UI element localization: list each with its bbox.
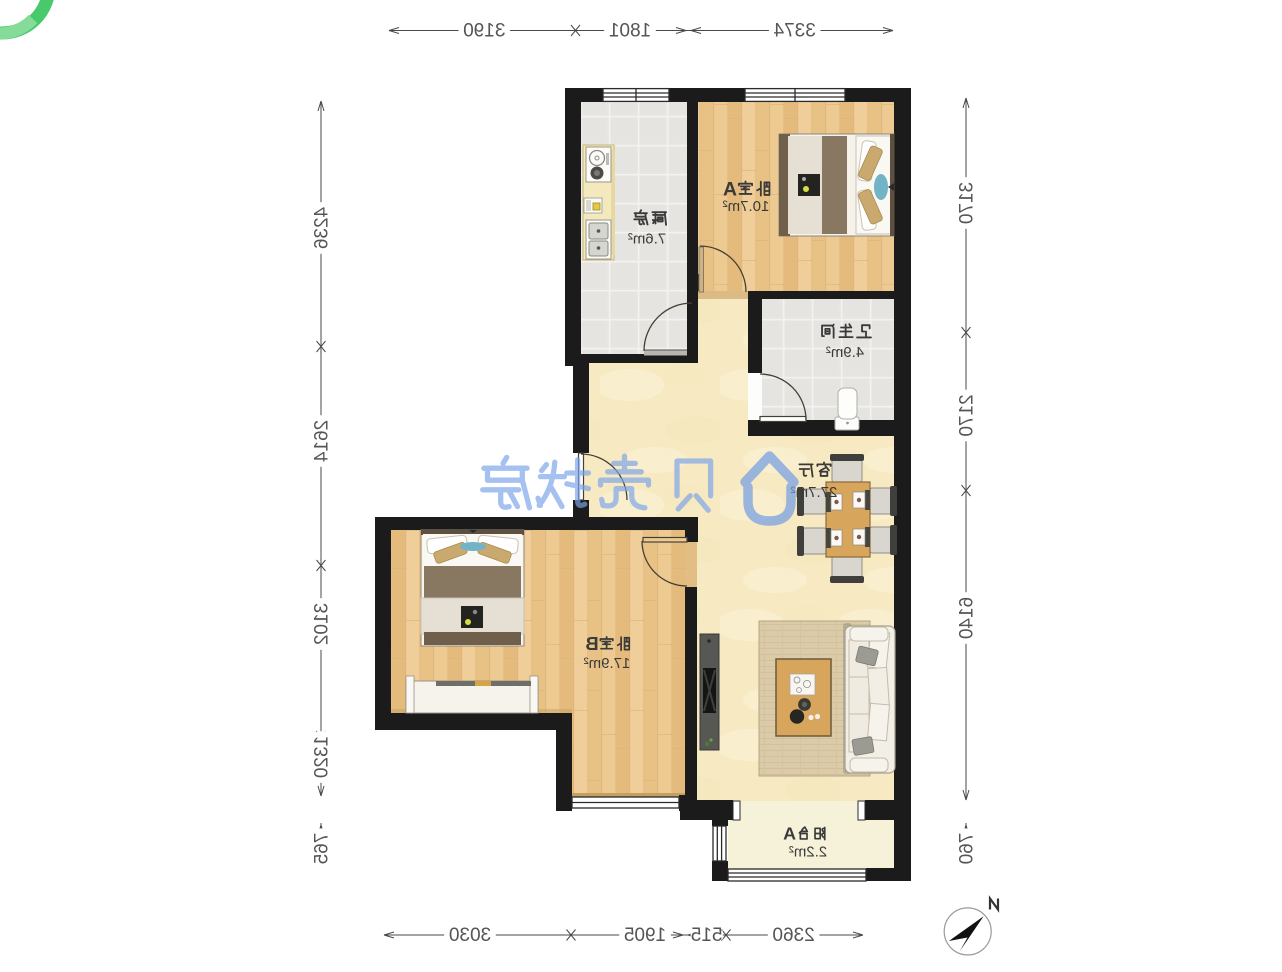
svg-text:A: A	[783, 823, 796, 843]
svg-text:7.6m²: 7.6m²	[628, 231, 666, 248]
svg-text:6140: 6140	[957, 597, 978, 639]
svg-text:3374: 3374	[773, 21, 816, 42]
svg-text:2170: 2170	[957, 394, 978, 436]
svg-text:515: 515	[691, 925, 723, 946]
svg-text:2614: 2614	[312, 420, 333, 463]
svg-text:2.2m²: 2.2m²	[789, 844, 827, 861]
svg-text:4.9m²: 4.9m²	[826, 344, 864, 361]
svg-text:1801: 1801	[609, 21, 651, 42]
svg-text:10.7m²: 10.7m²	[723, 198, 770, 215]
svg-text:3030: 3030	[449, 925, 491, 946]
svg-text:1320: 1320	[312, 736, 333, 778]
svg-text:B: B	[585, 633, 598, 654]
svg-text:3102: 3102	[312, 603, 333, 645]
svg-text:1905: 1905	[624, 925, 666, 946]
svg-text:17.9m²: 17.9m²	[584, 655, 631, 672]
svg-text:765: 765	[312, 833, 333, 865]
svg-text:4236: 4236	[312, 207, 333, 249]
svg-text:3170: 3170	[957, 182, 978, 224]
svg-text:3190: 3190	[463, 21, 505, 42]
svg-text:760: 760	[957, 833, 978, 865]
svg-text:27.7m²: 27.7m²	[791, 484, 838, 501]
svg-text:2360: 2360	[772, 925, 814, 946]
